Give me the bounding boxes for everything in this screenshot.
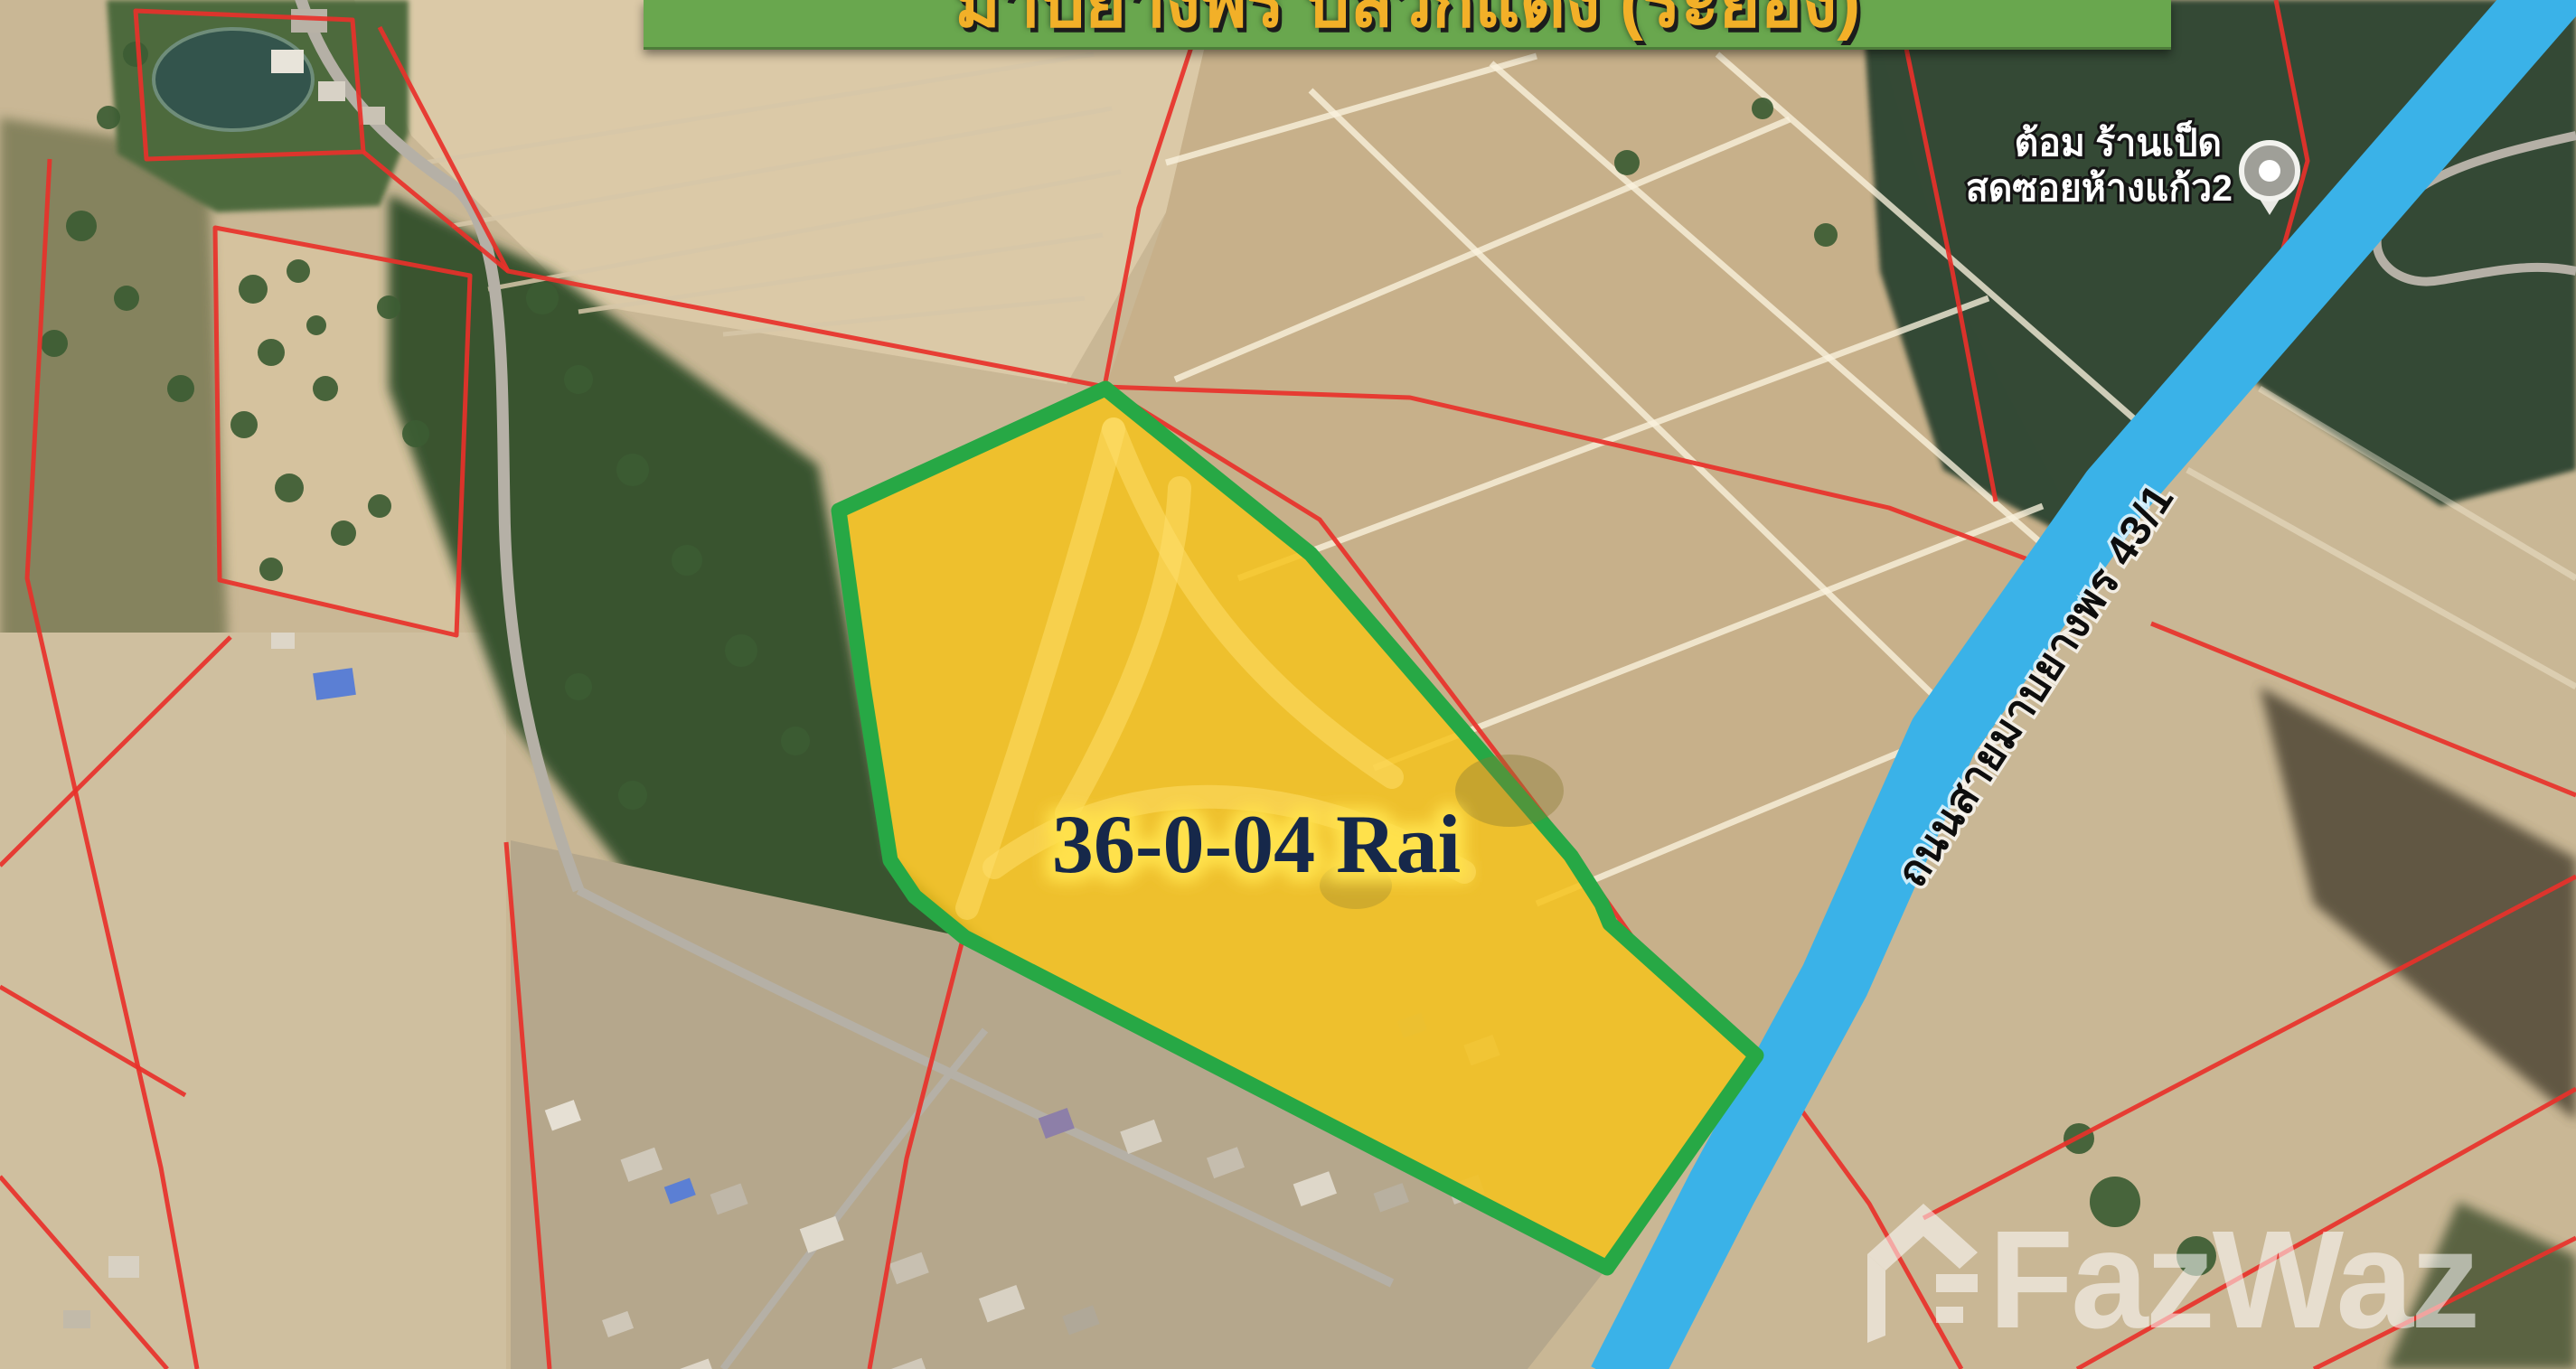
poi-name-line1: ต้อม ร้านเป็ด (2015, 120, 2222, 164)
land-listing-map-image: 36-0-04 Rai 36-0-04 Rai ถนนสายมาบยางพร 4… (0, 0, 2576, 1369)
fazwaz-brand-text: FazWaz (1988, 1191, 2477, 1369)
fazwaz-watermark: FazWaz (1864, 1191, 2477, 1369)
poi-name-line2: สดซอยห้างแก้ว2 (1966, 167, 2233, 209)
title-banner-text: มาบยางพร ปลวกแดง (ระยอง) (644, 0, 2171, 38)
pond (154, 29, 313, 130)
title-banner: มาบยางพร ปลวกแดง (ระยอง) (644, 0, 2171, 50)
plot-area-label: 36-0-04 Rai (1052, 798, 1461, 890)
fazwaz-house-icon (1864, 1191, 1979, 1369)
satellite-map: 36-0-04 Rai 36-0-04 Rai ถนนสายมาบยางพร 4… (0, 0, 2576, 1369)
